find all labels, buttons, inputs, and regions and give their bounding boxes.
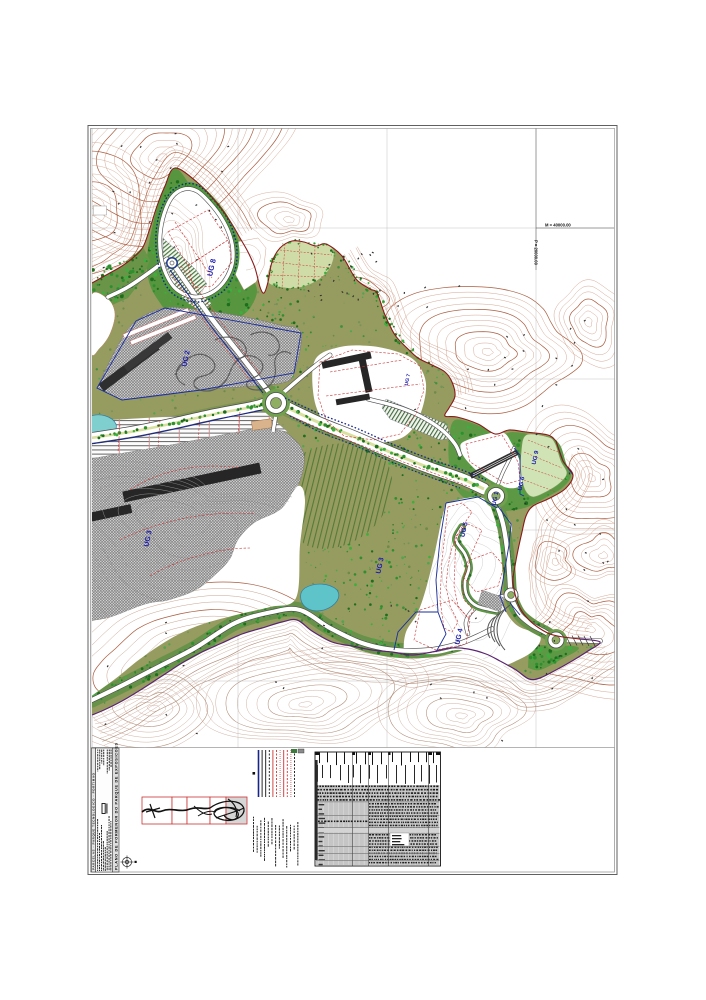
svg-text:M = 40000.00: M = 40000.00 [545, 223, 571, 228]
svg-text:PLANO DE PORMENOR DO PARQUE DE: PLANO DE PORMENOR DO PARQUE DE EXPOSICOE… [114, 742, 118, 870]
svg-text:PARCELAS - PARQUE TECNOLOGIC: PARCELAS - PARQUE TECNOLOGICO - PORTIMAO [92, 772, 96, 870]
